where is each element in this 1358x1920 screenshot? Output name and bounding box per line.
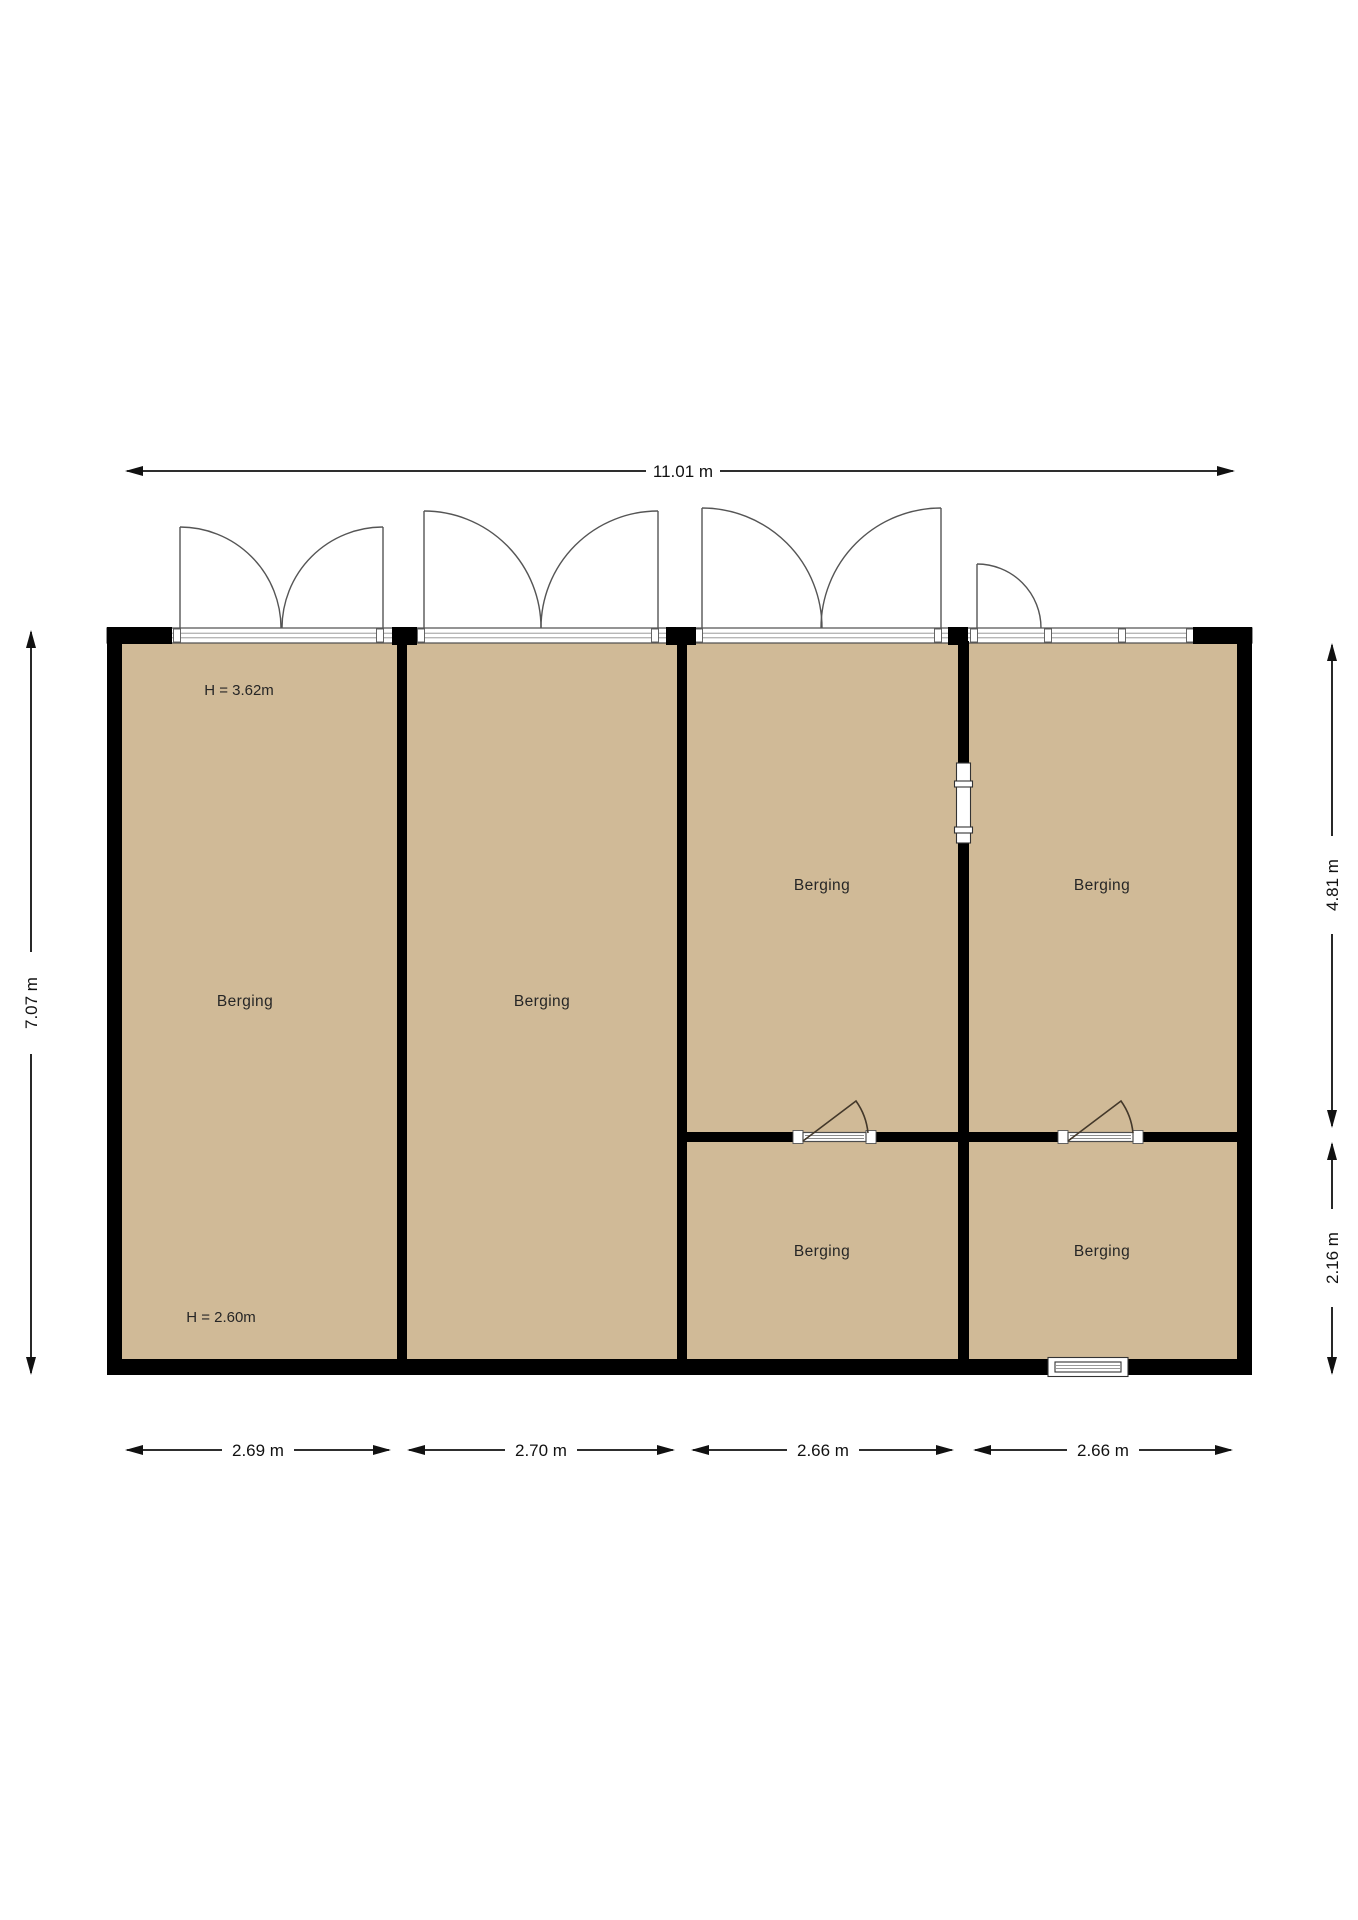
- bottom-window: [1048, 1358, 1128, 1377]
- interior-window: [955, 763, 973, 843]
- wall-left: [107, 628, 122, 1375]
- dimension-bottom-3-label: 2.66 m: [797, 1441, 849, 1460]
- corner-block-top-right: [1193, 627, 1252, 644]
- dimension-top-label: 11.01 m: [653, 462, 713, 481]
- wall-horizontal-b: [876, 1132, 1058, 1142]
- wall-room2-room3: [677, 641, 687, 1359]
- wall-horizontal-c: [1143, 1132, 1237, 1142]
- room-2-label: Berging: [514, 993, 570, 1010]
- dimension-left-label: 7.07 m: [22, 977, 41, 1029]
- room-1-label: Berging: [217, 993, 273, 1010]
- room-4-label: Berging: [1074, 877, 1130, 894]
- ceiling-height-upper: H = 3.62m: [204, 682, 274, 699]
- wall-horizontal-a: [686, 1132, 793, 1142]
- dimension-right-upper-label: 4.81 m: [1323, 859, 1342, 911]
- dimension-bottom-1-label: 2.69 m: [232, 1441, 284, 1460]
- floor-plan-drawing: Berging Berging Berging Berging Berging …: [0, 0, 1358, 1920]
- wall-room3-room4-lower: [958, 843, 969, 1359]
- room-6-label: Berging: [1074, 1243, 1130, 1260]
- dimension-bottom-4-label: 2.66 m: [1077, 1441, 1129, 1460]
- dimension-right-lower-label: 2.16 m: [1323, 1232, 1342, 1284]
- room-3-label: Berging: [794, 877, 850, 894]
- corner-block-top-left: [107, 627, 172, 644]
- wall-room3-room4-upper: [958, 641, 969, 763]
- wall-right: [1237, 628, 1252, 1375]
- ceiling-height-lower: H = 2.60m: [186, 1309, 256, 1326]
- dimension-bottom-2-label: 2.70 m: [515, 1441, 567, 1460]
- floor-plan-page: Berging Berging Berging Berging Berging …: [0, 0, 1358, 1920]
- room-5-label: Berging: [794, 1243, 850, 1260]
- wall-room1-room2: [397, 641, 407, 1359]
